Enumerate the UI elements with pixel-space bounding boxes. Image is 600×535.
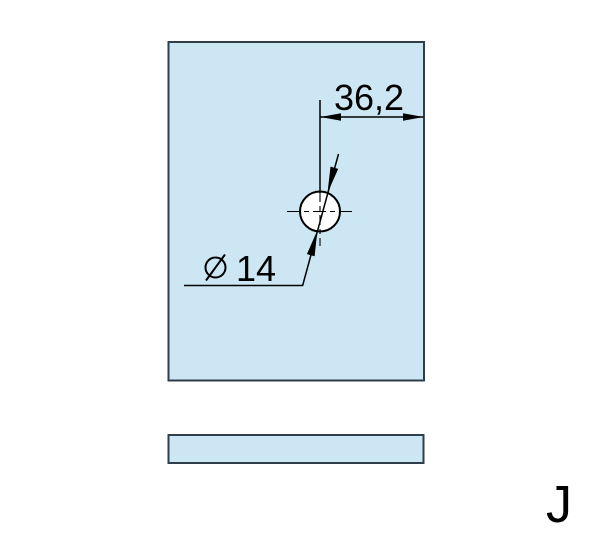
panel-side-view [169, 435, 424, 463]
sheet-letter: J [546, 476, 572, 534]
dimension-label-width: 36,2 [334, 77, 404, 118]
diameter-label: 14 [236, 248, 276, 289]
technical-drawing-canvas: 36,2 14 J [0, 0, 600, 535]
drawing-svg: 36,2 14 J [0, 0, 600, 535]
